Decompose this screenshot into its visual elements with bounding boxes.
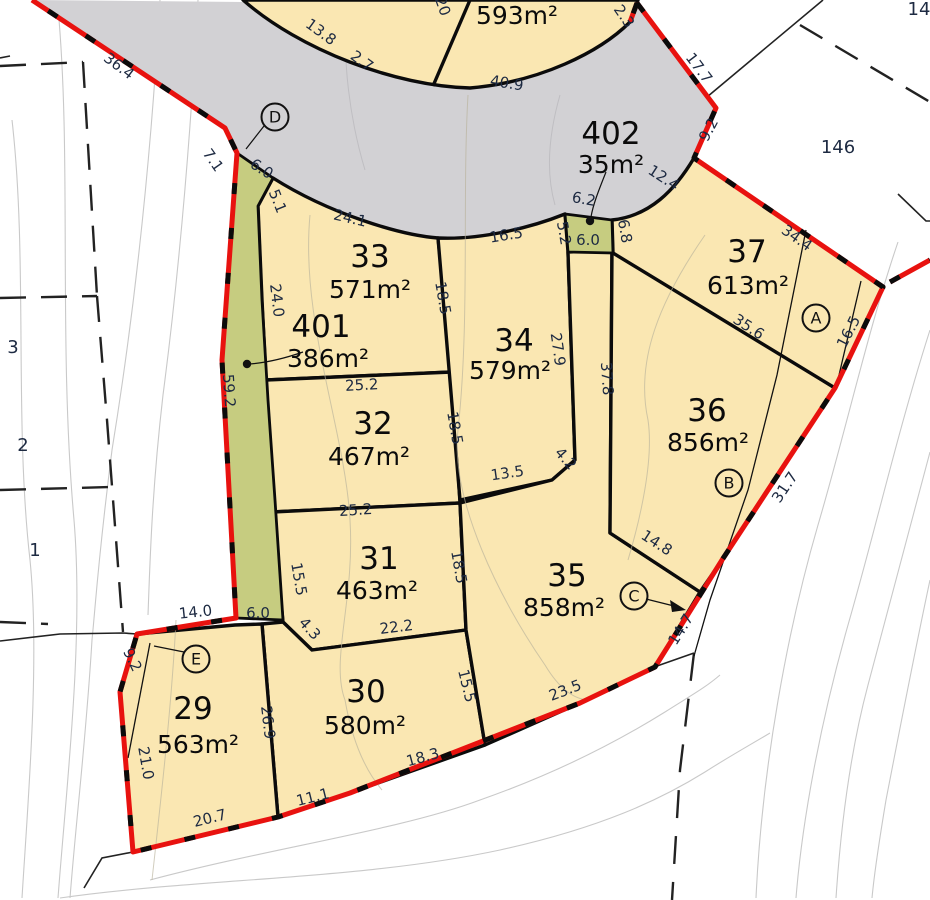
dimension-label: 59.2: [219, 373, 239, 408]
dimension-label: 7.1: [199, 145, 227, 175]
lot-area: 579m²: [469, 356, 551, 385]
lot-number: 34: [494, 323, 533, 359]
lot-area: 571m²: [329, 275, 411, 304]
lot-area: 386m²: [287, 344, 369, 373]
lot-area: 463m²: [336, 576, 418, 605]
marker-letter-b: B: [724, 474, 735, 493]
lot-area: 593m²: [476, 1, 558, 30]
dimension-label: 25.2: [345, 375, 379, 395]
adjacent-parcel-number: 14: [908, 0, 930, 20]
lot-number: 402: [581, 116, 640, 152]
adjacent-parcel-number: 2: [17, 435, 28, 456]
dimension-label: 25.2: [338, 500, 373, 520]
lot-area: 580m²: [324, 711, 406, 740]
lot-area: 35m²: [578, 150, 644, 179]
dimension-label: 6.0: [576, 231, 600, 249]
adjacent-parcel-number: 3: [7, 337, 18, 358]
survey-plan-page: 36.47.16.05.124.113.82.740.9202.317.79.2…: [0, 0, 930, 900]
marker-letter-c: C: [628, 587, 639, 606]
adjacent-parcel-number: 146: [821, 137, 855, 158]
lot-number: 33: [350, 239, 389, 275]
adjacent-parcel-number: 1: [29, 540, 40, 561]
dimension-label: 37.8: [597, 361, 617, 396]
marker-letter-d: D: [269, 108, 281, 127]
lot-number: 401: [291, 309, 350, 345]
marker-letter-a: A: [811, 309, 822, 328]
dimension-label: 14.0: [178, 601, 213, 622]
lot-number: 30: [346, 674, 385, 710]
lot-number: 31: [359, 541, 398, 577]
lot-area: 563m²: [157, 730, 239, 759]
survey-plan-map: 36.47.16.05.124.113.82.740.9202.317.79.2…: [0, 0, 930, 900]
lot-number: 36: [687, 393, 726, 429]
lot-area: 856m²: [667, 428, 749, 457]
lot-number: 37: [727, 234, 766, 270]
lot-number: 29: [173, 691, 212, 727]
lot-area: 858m²: [523, 593, 605, 622]
lot-number: 32: [353, 406, 392, 442]
marker-letter-e: E: [191, 650, 201, 669]
lot-area: 467m²: [328, 442, 410, 471]
lot-area: 613m²: [707, 271, 789, 300]
lot-number: 35: [547, 558, 586, 594]
dimension-label: 6.0: [246, 604, 270, 622]
